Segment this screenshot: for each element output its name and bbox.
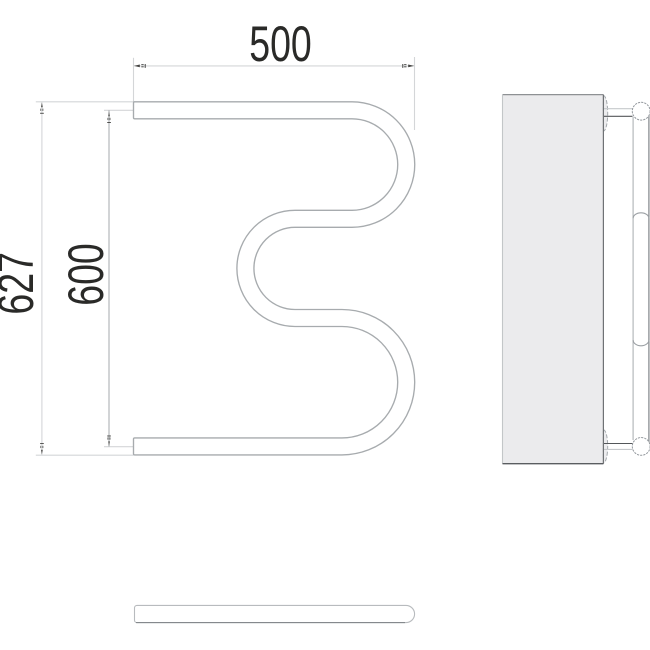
svg-text:500: 500 — [249, 17, 312, 72]
svg-text:627: 627 — [0, 252, 44, 315]
svg-text:600: 600 — [59, 243, 114, 306]
